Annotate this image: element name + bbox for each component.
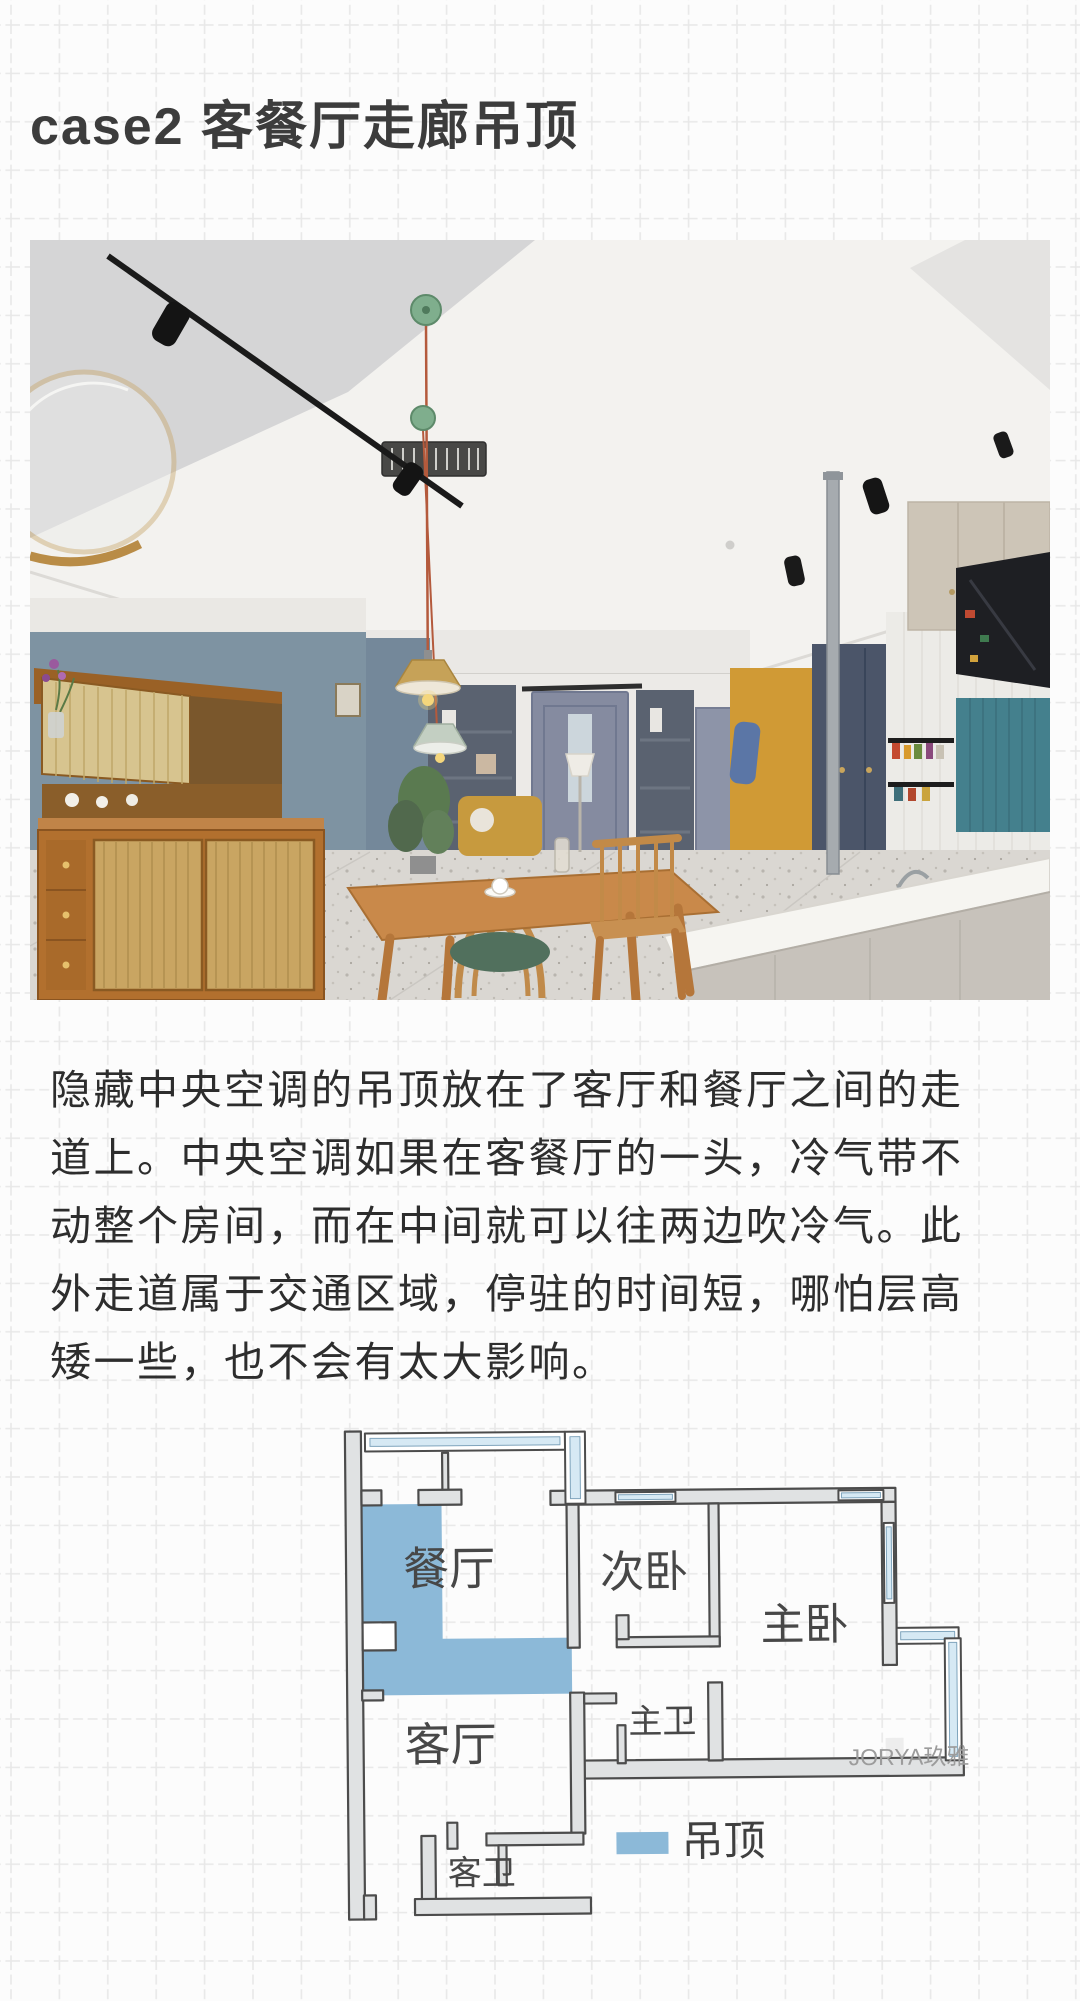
paragraph-line: 道上。中央空调如果在客餐厅的一头，冷气带不 (50, 1124, 950, 1192)
legend-label: 吊顶 (681, 1817, 765, 1865)
paragraph-line: 隐藏中央空调的吊顶放在了客厅和餐厅之间的走 (50, 1056, 950, 1124)
page-title: case2 客餐厅走廊吊顶 (30, 84, 579, 159)
interior-photo (30, 240, 1050, 1000)
ceiling-highlight (362, 1503, 573, 1696)
room-label-master-bath: 主卫 (628, 1703, 696, 1742)
body-paragraph: 隐藏中央空调的吊顶放在了客厅和餐厅之间的走 道上。中央空调如果在客餐厅的一头，冷… (50, 1056, 950, 1396)
room-label-second-bedroom: 次卧 (600, 1548, 688, 1598)
room-label-master-bedroom: 主卧 (760, 1600, 848, 1650)
room-label-guest-bath: 客卫 (448, 1854, 516, 1893)
plan-door-niche (363, 1622, 396, 1650)
paragraph-line: 外走道属于交通区域，停驻的时间短，哪怕层高 (50, 1260, 950, 1328)
room-label-living: 客厅 (404, 1718, 496, 1771)
floor-plan: 餐厅 次卧 主卧 客厅 主卫 客卫 JORYA玖雅 吊顶 (300, 1415, 1000, 1935)
watermark-text: JORYA玖雅 (849, 1743, 970, 1770)
paragraph-line: 动整个房间，而在中间就可以往两边吹冷气。此 (50, 1192, 950, 1260)
room-label-dining: 餐厅 (403, 1542, 495, 1595)
wooden-cabinet (34, 659, 324, 1000)
paragraph-line: 矮一些，也不会有太大影响。 (50, 1328, 950, 1396)
legend-swatch (616, 1832, 668, 1854)
